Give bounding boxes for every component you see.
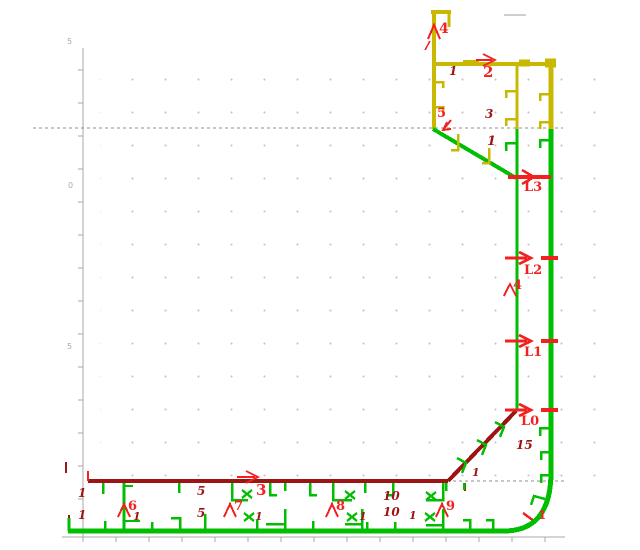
label: 5 [197,485,205,497]
label: L2 [524,264,542,277]
segment [433,129,516,178]
stiffener-mark [506,143,517,151]
stiffener-mark [506,119,517,126]
cad-viewport: 425L3L2L1L04367891131115511111010115505 [0,0,640,550]
label: 1 [133,511,141,522]
label: 1 [538,509,546,521]
label: 1 [255,511,263,522]
stiffener-mark [310,483,317,495]
label: 1 [78,487,86,499]
label: 5 [67,343,72,351]
label: L3 [524,181,542,194]
stiffener-mark [425,41,430,50]
label: 1 [409,510,417,521]
label: L0 [521,415,539,428]
label: 15 [516,439,533,451]
label: 7 [234,500,243,513]
label: 2 [483,65,493,80]
label: 1 [472,467,480,478]
label: 5 [437,107,446,120]
label: L1 [524,346,542,359]
label: 9 [446,500,455,513]
label: 3 [485,108,493,120]
label: 1 [359,511,367,522]
stiffener-mark [531,496,545,505]
label: 5 [67,38,72,46]
stiffener-mark [506,91,517,98]
label: 5 [197,507,205,519]
label: 4 [439,22,449,36]
stiffener-mark [333,483,352,500]
label: 1 [78,509,86,521]
label: 10 [383,490,400,502]
label: 10 [383,506,400,518]
drawing-svg [0,0,640,550]
segment [448,411,516,481]
label: 3 [256,483,266,498]
label: 1 [487,135,496,148]
label: 4 [513,279,522,292]
label: 0 [68,182,73,190]
label: 8 [336,500,345,513]
label: 1 [449,65,457,77]
stiffener-mark [270,483,277,495]
